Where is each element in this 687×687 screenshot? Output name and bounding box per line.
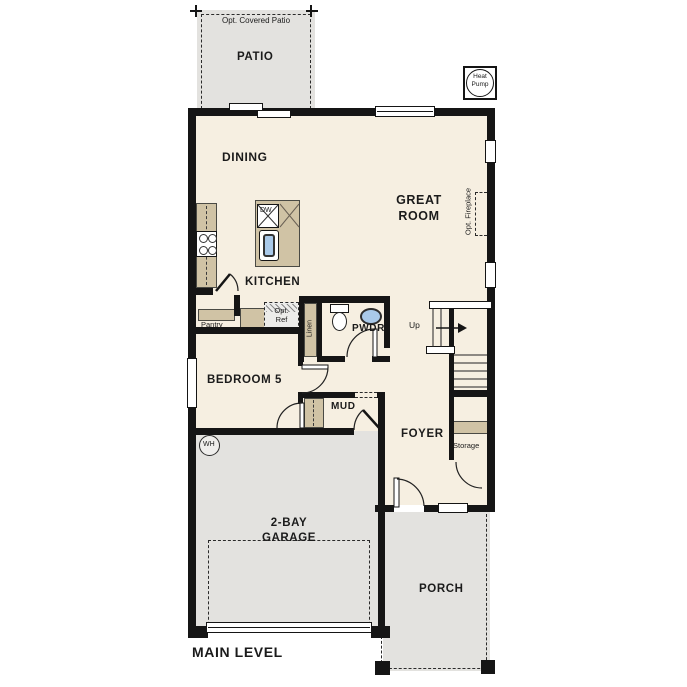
room-label-mud: MUD — [331, 401, 356, 412]
closet-door-arc — [277, 403, 302, 428]
room-label-opt-covered-patio: Opt. Covered Patio — [222, 16, 290, 25]
pantry-door-arc — [230, 274, 238, 291]
room-label-garage: 2-BAYGARAGE — [239, 516, 339, 546]
bedroom5-door-arc — [302, 367, 328, 393]
storage-door-arc — [456, 462, 482, 488]
room-label-bedroom5: BEDROOM 5 — [207, 374, 282, 386]
label-pantry: Pantry — [201, 320, 223, 329]
room-label-powder: PWDR — [352, 323, 385, 334]
label-opt-ref: Opt.Ref — [264, 306, 299, 324]
room-label-great-room: GREATROOM — [369, 192, 469, 224]
label-dishwasher: DW — [260, 207, 272, 214]
island-x-mark — [280, 204, 299, 227]
label-storage: Storage — [453, 441, 479, 450]
label-up: Up — [409, 320, 420, 330]
room-label-porch: PORCH — [419, 583, 464, 595]
garage-entry-door-arc — [354, 410, 363, 430]
room-label-patio: PATIO — [237, 51, 273, 63]
stair-treads-lower — [454, 355, 487, 387]
bedroom5-door-leaf — [302, 365, 328, 369]
pantry-door-leaf — [216, 274, 230, 291]
up-arrow-icon — [458, 323, 467, 333]
closet-door-leaf — [300, 403, 304, 428]
room-label-dining: DINING — [222, 150, 268, 164]
front-door-leaf — [394, 478, 399, 507]
room-label-kitchen: KITCHEN — [245, 276, 300, 288]
front-door-arc — [397, 479, 424, 506]
room-label-foyer: FOYER — [401, 428, 444, 440]
linework-overlay — [0, 0, 687, 687]
label-linen: Linen — [307, 304, 314, 354]
label-opt-fireplace: Opt. Fireplace — [464, 182, 473, 242]
plan-title-main-level: MAIN LEVEL — [192, 644, 283, 660]
floor-plan: HeatPump WH — [0, 0, 687, 687]
garage-entry-door-leaf — [363, 410, 381, 430]
